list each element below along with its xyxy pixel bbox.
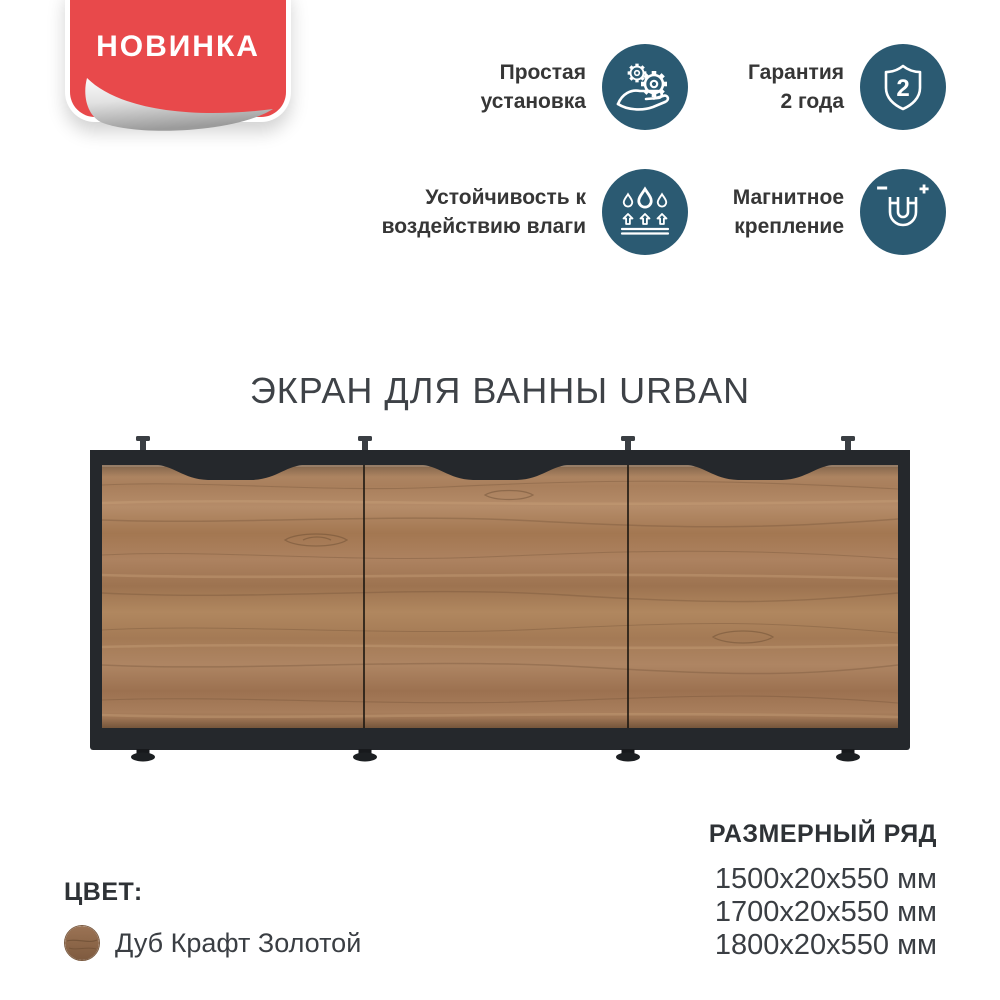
color-swatch-label: Дуб Крафт Золотой xyxy=(115,928,361,959)
feature-text-line: Магнитное xyxy=(614,183,844,212)
feature-easy-install-label: Простая установка xyxy=(356,58,586,116)
feature-magnetic-mount: Магнитное крепление − + xyxy=(614,169,946,255)
size-item: 1800x20x550 мм xyxy=(709,929,937,962)
new-badge: НОВИНКА xyxy=(65,0,291,128)
mounting-pins xyxy=(136,436,855,452)
page-title: ЭКРАН ДЛЯ ВАННЫ URBAN xyxy=(0,370,1000,412)
feature-text-line: Гарантия xyxy=(614,58,844,87)
size-section: РАЗМЕРНЫЙ РЯД 1500x20x550 мм 1700x20x550… xyxy=(709,820,937,962)
color-heading: ЦВЕТ: xyxy=(64,878,361,907)
feature-text-line: воздействию влаги xyxy=(356,212,586,241)
wood-panels xyxy=(102,465,898,728)
feature-text-line: установка xyxy=(356,87,586,116)
feature-text-line: 2 года xyxy=(614,87,844,116)
handle-notches xyxy=(152,462,838,480)
product-image xyxy=(85,425,915,770)
feature-magnetic-mount-label: Магнитное крепление xyxy=(614,183,844,241)
feature-warranty-label: Гарантия 2 года xyxy=(614,58,844,116)
feature-text-line: крепление xyxy=(614,212,844,241)
size-heading: РАЗМЕРНЫЙ РЯД xyxy=(709,820,937,849)
wood-color-swatch xyxy=(64,925,100,961)
feature-warranty: Гарантия 2 года 2 xyxy=(614,44,946,130)
size-item: 1500x20x550 мм xyxy=(709,863,937,896)
page-curl-icon xyxy=(75,74,287,140)
magnet-icon: − + xyxy=(860,169,946,255)
magnet-plus-sign: + xyxy=(919,181,928,198)
product-card: НОВИНКА Простая установка xyxy=(0,0,1000,1000)
screen-feet xyxy=(131,749,860,762)
shield-2-icon: 2 xyxy=(860,44,946,130)
shield-number: 2 xyxy=(896,75,909,102)
color-section: ЦВЕТ: Дуб Крафт Золотой xyxy=(64,878,361,961)
feature-text-line: Простая xyxy=(356,58,586,87)
feature-text-line: Устойчивость к xyxy=(356,183,586,212)
color-swatch-row: Дуб Крафт Золотой xyxy=(64,925,361,961)
feature-moisture-resistance-label: Устойчивость к воздействию влаги xyxy=(356,183,586,241)
size-item: 1700x20x550 мм xyxy=(709,896,937,929)
new-badge-label: НОВИНКА xyxy=(65,30,291,64)
magnet-minus-sign: − xyxy=(877,178,888,198)
